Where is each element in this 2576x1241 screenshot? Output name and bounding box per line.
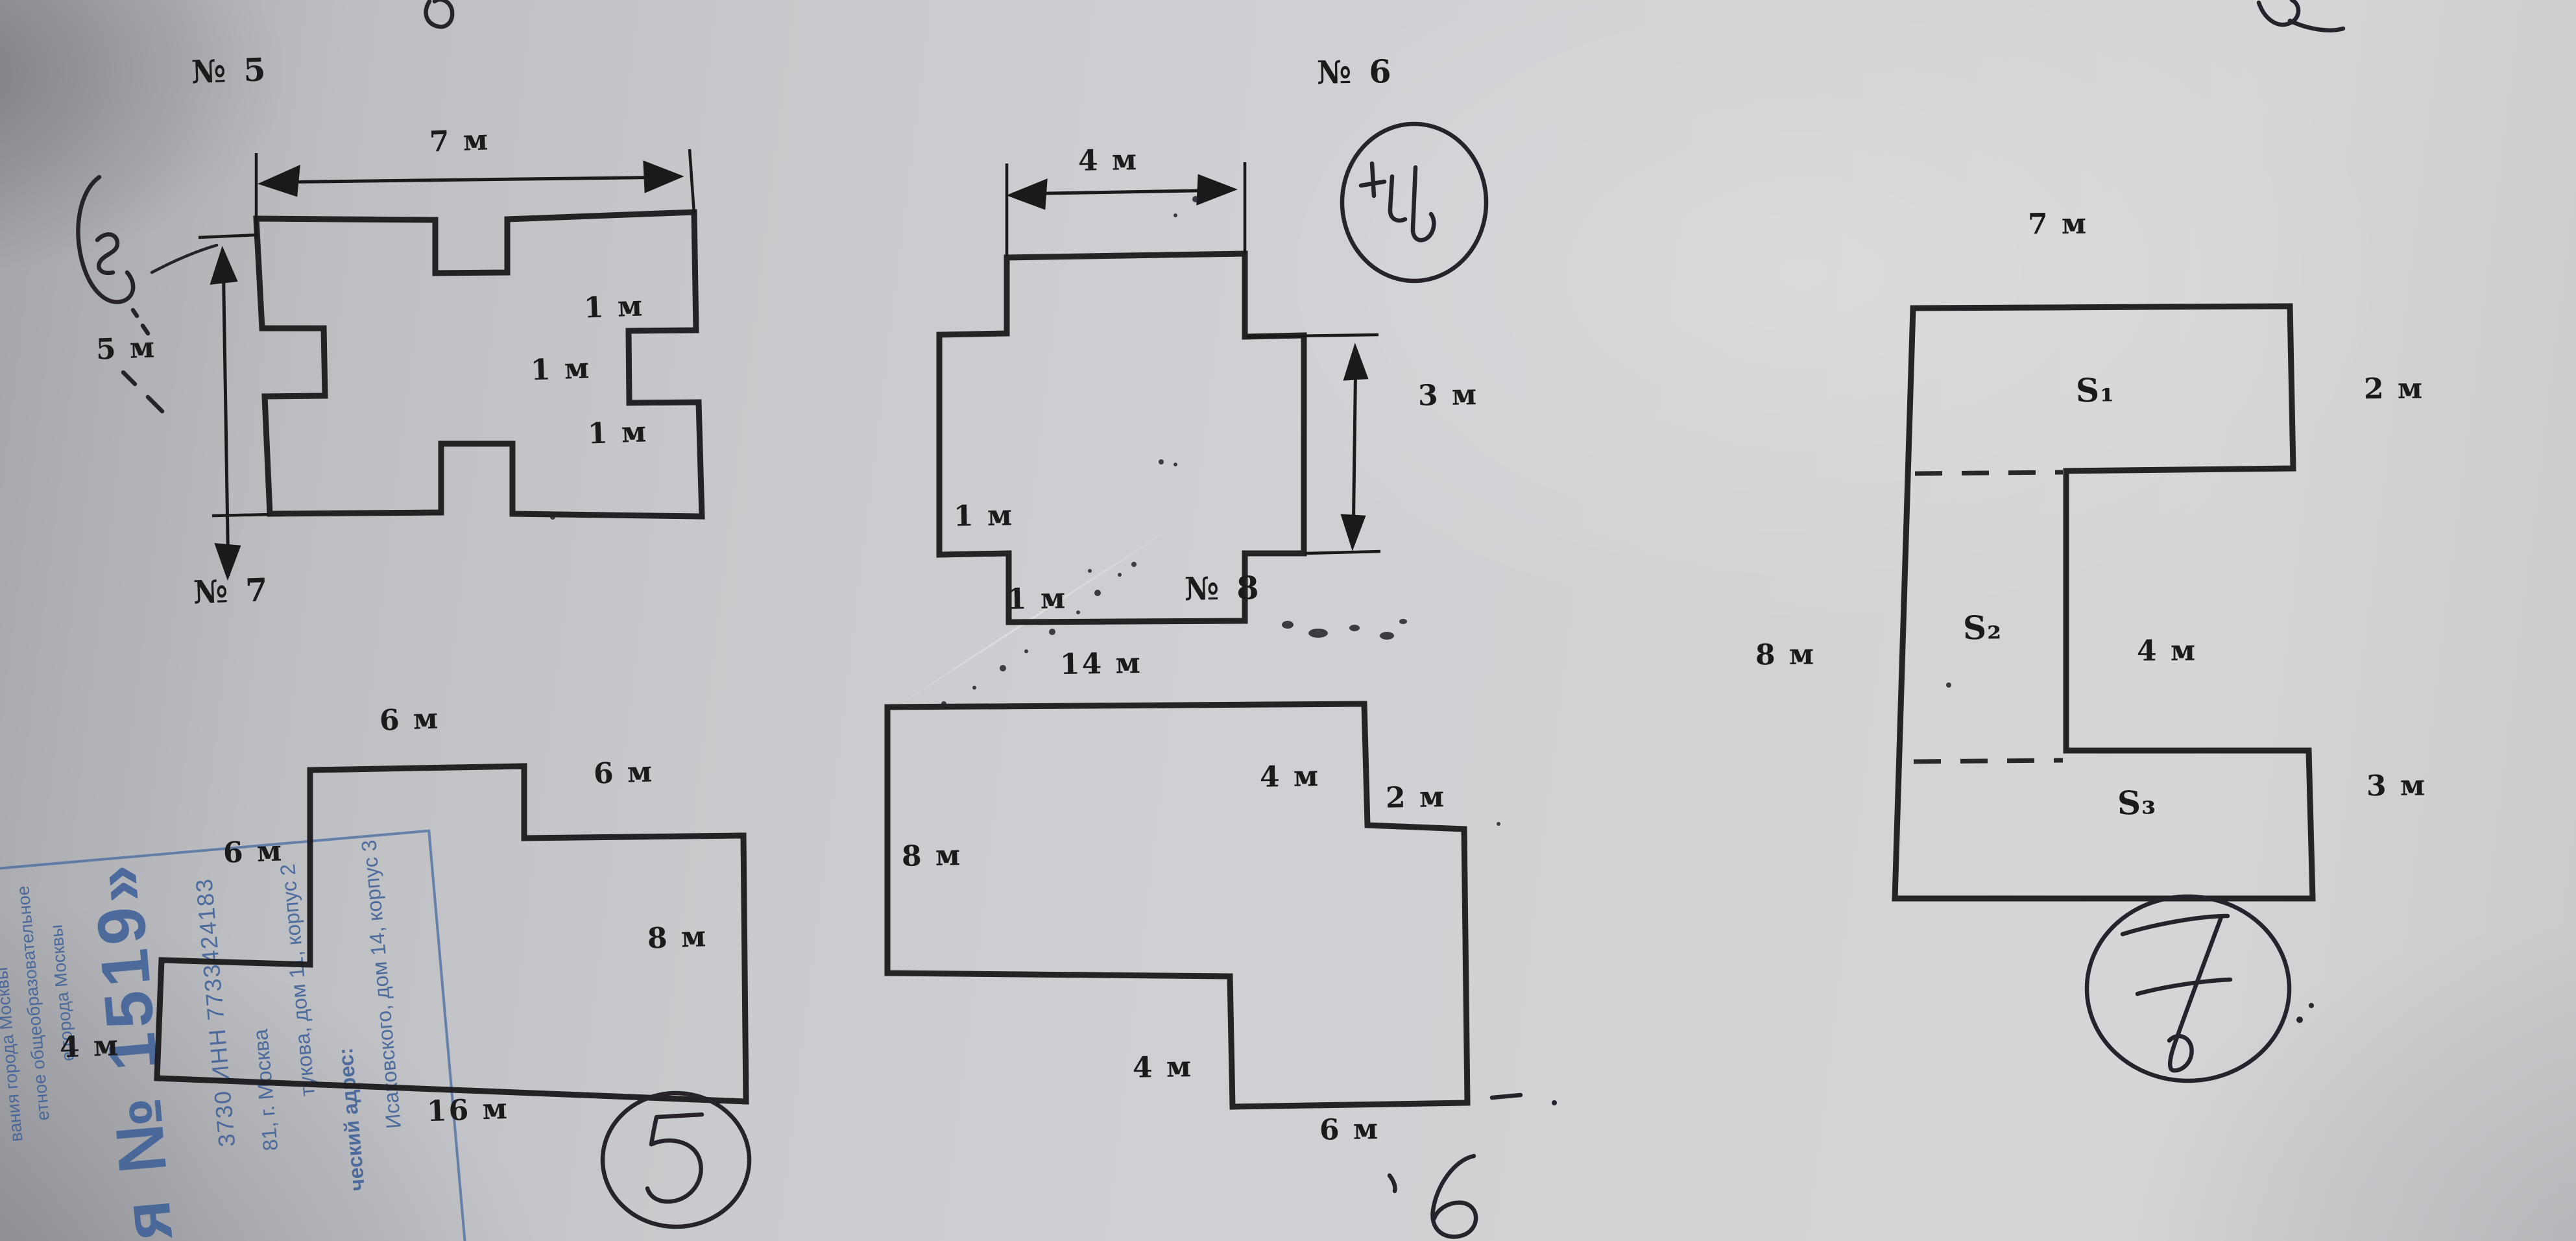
figure-5-shape <box>256 212 702 516</box>
handwritten-7 <box>2123 916 2228 934</box>
arrow-7m-head-right <box>645 163 680 191</box>
handwritten-comma <box>1390 1175 1395 1191</box>
handwritten-6-top <box>426 0 453 27</box>
grade-circle-7 <box>2087 897 2289 1081</box>
figure-8-shape <box>887 704 1467 1107</box>
handwritten-4 <box>1390 176 1405 221</box>
handwritten-dash <box>143 326 148 333</box>
worksheet-photo: вания города Москвы етное общеобразовате… <box>0 0 2576 1241</box>
arrow-5m-line <box>223 253 228 576</box>
handwritten-7 <box>2169 917 2221 1070</box>
tick <box>690 149 694 214</box>
grade-circle-5 <box>603 1093 749 1227</box>
arrow-3m-head-bottom <box>1343 516 1364 546</box>
arrow-7m-head-left <box>262 167 298 195</box>
arrow-3m-head-top <box>1345 348 1366 379</box>
tick <box>199 235 258 237</box>
handwritten-dot <box>2309 1003 2314 1008</box>
handwritten-4 <box>1413 167 1434 240</box>
tick <box>1246 335 1378 337</box>
tick <box>212 514 271 516</box>
arrow-4m-head-right <box>1198 176 1233 203</box>
arrow-5m-head-top <box>212 250 235 283</box>
handwritten-dot <box>2296 1017 2303 1023</box>
arrow-7m-line <box>264 177 678 182</box>
handwritten-4 <box>1372 163 1374 196</box>
tick <box>1305 551 1380 553</box>
handwritten-2-tail <box>2290 21 2343 30</box>
handwritten-7 <box>2137 980 2230 994</box>
handwritten-z-squiggle <box>97 234 117 273</box>
handwritten-5 <box>647 1114 702 1201</box>
dashed-s2-s3 <box>1914 760 2063 762</box>
handwritten-stroke <box>152 245 217 272</box>
figure-e-shape <box>1895 306 2313 898</box>
figure-6-shape <box>939 254 1304 622</box>
handwritten-dash <box>1492 1095 1521 1098</box>
arrow-5m-head-bottom <box>217 545 239 576</box>
handwritten-loop-note <box>78 177 133 302</box>
handwritten-dot <box>1552 1100 1557 1105</box>
figures-layer <box>0 0 2576 1241</box>
handwritten-dash <box>133 310 137 316</box>
handwritten-dash <box>148 397 162 411</box>
handwritten-dash <box>123 372 135 384</box>
ink-specks <box>550 196 1951 826</box>
figure-7-shape <box>157 766 746 1102</box>
dashed-s1-s2 <box>1915 472 2063 474</box>
arrow-4m-head-left <box>1011 181 1046 208</box>
handwritten-6-bottom <box>1432 1156 1476 1237</box>
